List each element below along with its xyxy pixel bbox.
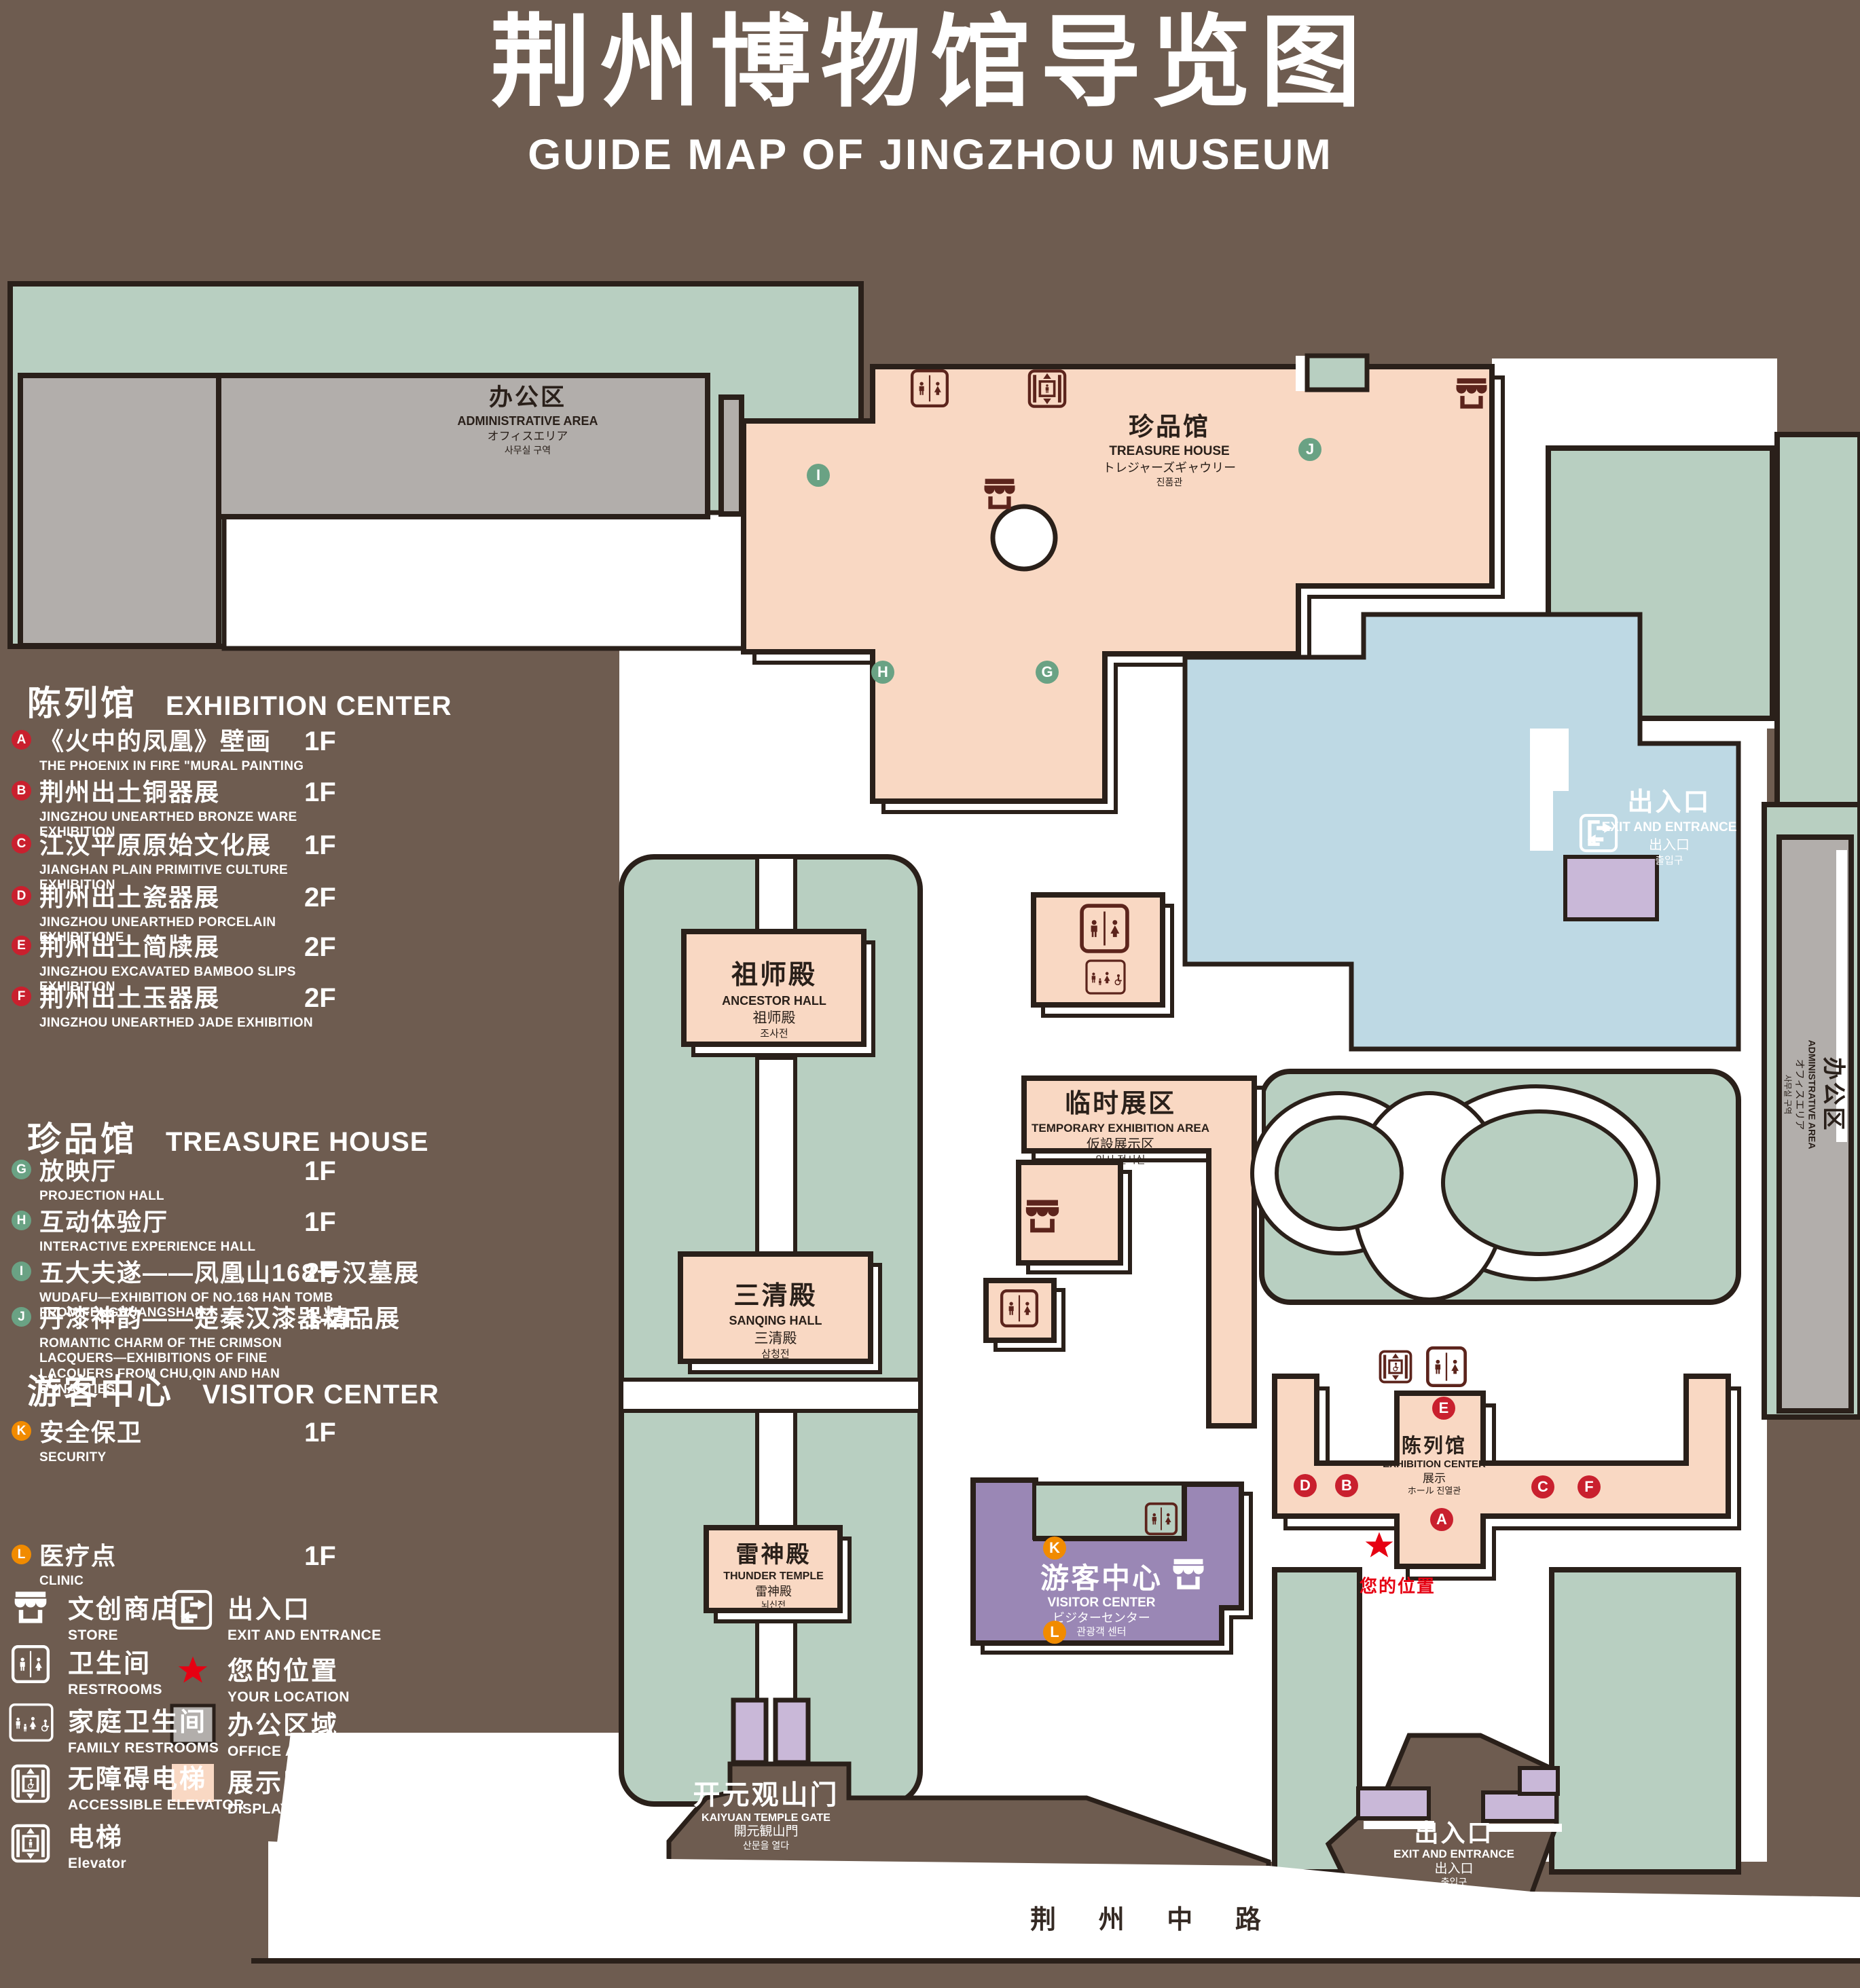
- map-badge-f: F: [1578, 1475, 1601, 1498]
- legend-item-f: F 荆州出土玉器展 2F JINGZHOU UNEARTHED JADE EXH…: [12, 984, 473, 1031]
- legend-section-exhibition-center: 陈列馆EXHIBITION CENTER: [27, 676, 452, 725]
- item-floor: 1F: [304, 726, 336, 757]
- item-title: 荆州出土瓷器展: [39, 884, 473, 911]
- map-badge-h: H: [871, 661, 894, 684]
- item-subtitle: INTERACTIVE EXPERIENCE HALL: [39, 1240, 342, 1255]
- legend-restrooms: 卫生间RESTROOMS: [68, 1651, 162, 1698]
- badge-e: E: [12, 936, 31, 955]
- header: 荆州博物馆导览图 GUIDE MAP OF JINGZHOU MUSEUM: [490, 5, 1370, 179]
- map-badge-i: I: [807, 464, 830, 487]
- gate-pillar-right: [776, 1700, 808, 1763]
- legend-office-area: 办公区域OFFICE AREA: [227, 1713, 339, 1760]
- legend-store: 文创商店STORE: [68, 1597, 179, 1644]
- map-badge-j: J: [1298, 438, 1321, 461]
- item-floor: 1F: [304, 1156, 336, 1187]
- road-label: 荆 州 中 路: [1030, 1898, 1279, 1936]
- item-floor: 1F: [304, 1418, 336, 1448]
- item-subtitle: CLINIC: [39, 1574, 342, 1589]
- location-star-icon: [179, 1657, 207, 1683]
- circular-plaza: [993, 507, 1055, 569]
- map-badge-k: K: [1043, 1536, 1066, 1560]
- exit-structure-bottom-left: [1358, 1788, 1429, 1818]
- legend-family-restrooms: 家庭卫生间FAMILY RESTROOMS: [68, 1710, 219, 1756]
- badge-c: C: [12, 834, 31, 853]
- guide-map-page: 荆州博物馆导览图 GUIDE MAP OF JINGZHOU MUSEUM 陈列…: [0, 0, 1860, 1988]
- section-title-en: VISITOR CENTER: [202, 1380, 439, 1410]
- treasure-roof-slot: [1296, 356, 1305, 391]
- item-title: 安全保卫: [39, 1419, 473, 1446]
- item-title: 互动体验厅: [39, 1209, 473, 1236]
- exit-path-a: [1530, 729, 1569, 791]
- item-floor: 1F: [304, 1207, 336, 1238]
- legend-item-a: A 《火中的凤凰》壁画 1F THE PHOENIX IN FIRE "MURA…: [12, 728, 473, 774]
- section-title-en: EXHIBITION CENTER: [166, 691, 452, 721]
- item-floor: 2F: [304, 1258, 336, 1289]
- item-subtitle: PROJECTION HALL: [39, 1189, 342, 1204]
- item-subtitle: JINGZHOU UNEARTHED JADE EXHIBITION: [39, 1016, 342, 1031]
- page-subtitle: GUIDE MAP OF JINGZHOU MUSEUM: [490, 130, 1370, 179]
- map-badge-l: L: [1043, 1621, 1066, 1644]
- legend-display-area: 展示区域DISPLAY AREA: [227, 1771, 339, 1818]
- badge-f: F: [12, 987, 31, 1006]
- section-title-zh: 陈列馆: [27, 684, 137, 722]
- store-icon: [15, 1591, 47, 1623]
- badge-l: L: [12, 1545, 31, 1564]
- exhibition-center-label: 陈列馆 EXHIBITION CENTER 展示 ホール 진열관: [1383, 1434, 1486, 1497]
- item-subtitle: SECURITY: [39, 1450, 342, 1466]
- map-badge-e: E: [1432, 1397, 1455, 1420]
- kaiyuan-gate-label: 开元观山门 KAIYUAN TEMPLE GATE 開元観山門 산문을 열다: [693, 1779, 839, 1852]
- legend-exit: 出入口EXIT AND ENTRANCE: [227, 1597, 382, 1644]
- admin-top-label: 办公区 ADMINISTRATIVE AREA オフィスエリア 사무실 구역: [458, 382, 598, 456]
- exit-path-b: [1530, 791, 1553, 851]
- treasure-house-label: 珍品馆 TREASURE HOUSE トレジャーズギャウリー 진품관: [1103, 411, 1236, 488]
- gate-pillar-left: [733, 1700, 766, 1763]
- map-badge-a: A: [1430, 1508, 1453, 1531]
- badge-i: I: [12, 1262, 31, 1281]
- item-floor: 1-2F: [304, 1304, 360, 1334]
- sanqing-hall-label: 三清殿 SANQING HALL 三清殿 삼청전: [729, 1280, 822, 1361]
- item-floor: 1F: [304, 830, 336, 861]
- exit-topright-label: 出入口 EXIT AND ENTRANCE 出入口 출입구: [1602, 786, 1737, 868]
- page-title: 荆州博物馆导览图: [490, 5, 1370, 121]
- badge-g: G: [12, 1160, 31, 1179]
- exit-icon: [174, 1591, 211, 1628]
- legend-item-g: G 放映厅 1F PROJECTION HALL: [12, 1158, 473, 1204]
- item-title: 荆州出土铜器展: [39, 779, 473, 806]
- item-title: 五大夫遂——凤凰山168号汉墓展: [39, 1259, 473, 1287]
- legend-item-h: H 互动体验厅 1F INTERACTIVE EXPERIENCE HALL: [12, 1209, 473, 1255]
- map-badge-d: D: [1294, 1474, 1317, 1497]
- item-floor: 1F: [304, 777, 336, 808]
- item-floor: 1F: [304, 1541, 336, 1572]
- accessible-elevator-icon: [1381, 1352, 1411, 1382]
- legend-your-location: 您的位置YOUR LOCATION: [227, 1659, 350, 1706]
- section-title-zh: 游客中心: [27, 1373, 174, 1411]
- item-title: 荆州出土简牍展: [39, 934, 473, 961]
- restrooms-icon: [13, 1646, 48, 1682]
- item-title: 《火中的凤凰》壁画: [39, 728, 473, 755]
- item-title: 江汉平原原始文化展: [39, 832, 473, 859]
- admin-courtyard: [224, 513, 744, 648]
- legend-section-treasure-house: 珍品馆TREASURE HOUSE: [27, 1112, 428, 1161]
- badge-d: D: [12, 886, 31, 906]
- item-floor: 2F: [304, 983, 336, 1014]
- thunder-temple-label: 雷神殿 THUNDER TEMPLE 雷神殿 뇌신전: [723, 1540, 824, 1611]
- map-badge-b: B: [1335, 1474, 1358, 1497]
- badge-b: B: [12, 781, 31, 800]
- map-badge-g: G: [1036, 661, 1059, 684]
- badge-j: J: [12, 1307, 31, 1327]
- badge-a: A: [12, 730, 31, 750]
- elevator-icon: [1029, 371, 1065, 406]
- admin-right-label: 办公区 ADMINISTRATIVE AREA オフィスエリア 사무실 구역: [1782, 1040, 1848, 1149]
- badge-k: K: [12, 1421, 31, 1441]
- item-title: 丹漆神韵——楚秦汉漆器精品展: [39, 1305, 473, 1332]
- item-floor: 2F: [304, 883, 336, 913]
- elevator-icon: [13, 1826, 48, 1861]
- item-title: 荆州出土玉器展: [39, 984, 473, 1012]
- your-location-label: 您的位置: [1360, 1572, 1436, 1598]
- legend-elevator: 电梯Elevator: [68, 1825, 126, 1872]
- legend-accessible-elevator: 无障碍电梯ACCESSIBLE ELEVATOR: [68, 1767, 244, 1814]
- legend-section-visitor-center: 游客中心VISITOR CENTER: [27, 1365, 439, 1414]
- item-title: 医疗点: [39, 1543, 473, 1570]
- item-floor: 2F: [304, 932, 336, 963]
- section-title-zh: 珍品馆: [27, 1120, 137, 1158]
- treasure-roof-garden: [1307, 356, 1367, 390]
- section-title-en: TREASURE HOUSE: [166, 1127, 428, 1157]
- exit-structure-bottom-right2: [1520, 1768, 1558, 1794]
- temporary-exhibition-label: 临时展区 TEMPORARY EXHIBITION AREA 仮設展示区 임시 …: [1032, 1088, 1209, 1167]
- family-restrooms-icon: [10, 1705, 52, 1741]
- map-badge-c: C: [1531, 1475, 1554, 1498]
- badge-h: H: [12, 1211, 31, 1230]
- exit-bottom-label: 出入口 EXIT AND ENTRANCE 出入口 출입구: [1393, 1818, 1514, 1888]
- exit-structure-bottom-right: [1483, 1792, 1556, 1821]
- accessible-elevator-icon: [13, 1766, 48, 1801]
- legend-item-l: L 医疗点 1F CLINIC: [12, 1543, 473, 1589]
- legend-item-k: K 安全保卫 1F SECURITY: [12, 1419, 473, 1465]
- item-subtitle: THE PHOENIX IN FIRE "MURAL PAINTING: [39, 759, 342, 775]
- item-title: 放映厅: [39, 1158, 473, 1185]
- ancestor-hall-label: 祖师殿 ANCESTOR HALL 祖师殿 조사전: [722, 959, 826, 1041]
